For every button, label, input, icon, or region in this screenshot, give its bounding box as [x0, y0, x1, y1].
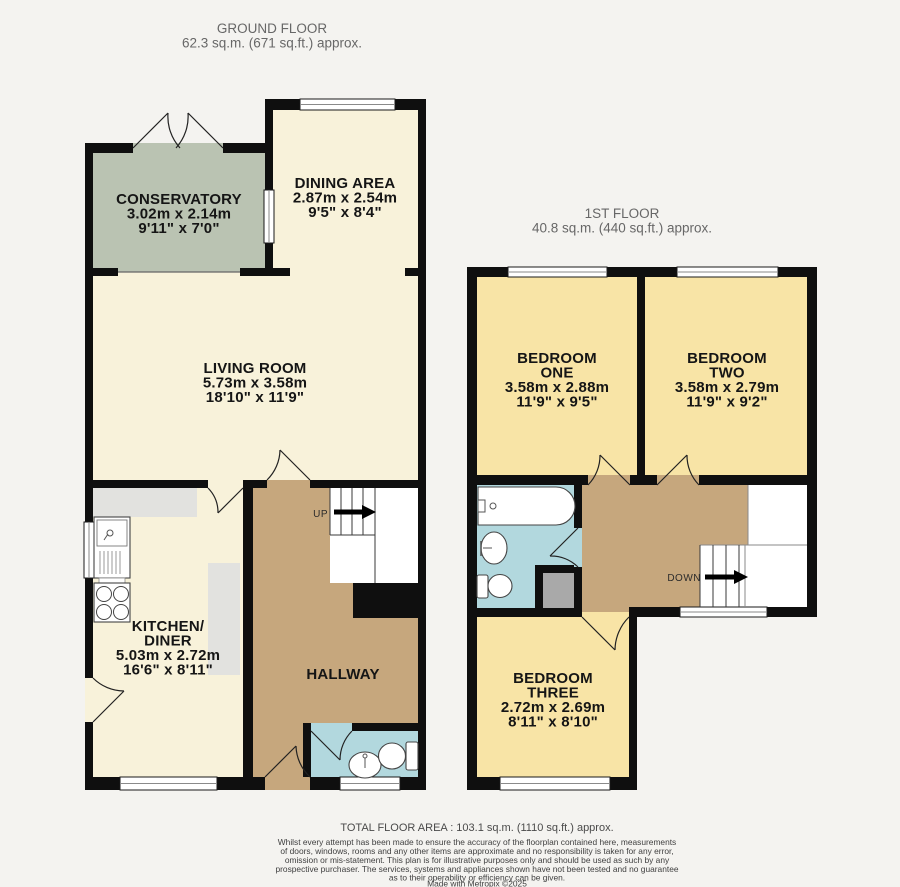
wall-segment: [467, 267, 477, 790]
bathroom-doorway: [574, 528, 582, 567]
floorplan-page: UP: [0, 0, 900, 887]
kitchen-doorway: [208, 480, 243, 488]
bedroom2-imperial: 11'9" x 9'2": [686, 394, 767, 411]
kitchen-counter-top: [93, 488, 197, 517]
wall-segment: [243, 480, 253, 783]
kitchen-hob-icon: [94, 578, 130, 622]
window: [84, 522, 94, 578]
understairs-wall-block: [353, 583, 418, 618]
back-door-opening: [85, 678, 93, 722]
wall-segment: [629, 607, 637, 790]
total-floor-area: TOTAL FLOOR AREA : 103.1 sq.m. (1110 sq.…: [340, 822, 613, 834]
window: [340, 777, 400, 790]
window: [508, 267, 607, 277]
wall-segment: [807, 267, 817, 617]
conservatory-door-opening: [133, 143, 223, 153]
wall-segment: [467, 608, 582, 617]
bedroom3-imperial: 8'11" x 8'10": [508, 714, 598, 731]
wc-sink-icon: [349, 752, 381, 778]
ground-floor-area: 62.3 sq.m. (671 sq.ft.) approx.: [182, 36, 362, 51]
wall-segment: [265, 99, 273, 276]
dining-living-opening: [290, 268, 405, 276]
down-label: DOWN: [667, 573, 701, 584]
window: [300, 99, 395, 110]
metropix-credit: Made with Metropix ©2025: [427, 879, 527, 887]
wall-segment: [85, 480, 426, 488]
kitchen-imperial: 16'6" x 8'11": [123, 662, 213, 679]
bathroom-toilet-icon: [477, 575, 512, 599]
airing-cupboard: [543, 573, 574, 608]
dining-imperial: 9'5" x 8'4": [308, 204, 382, 221]
wall-segment: [418, 99, 426, 790]
bathroom-sink-icon: [481, 532, 507, 564]
ground-floor-title: GROUND FLOOR: [217, 21, 328, 36]
first-floor-area: 40.8 sq.m. (440 sq.ft.) approx.: [532, 221, 712, 236]
up-label: UP: [313, 509, 328, 520]
front-door-opening: [265, 777, 310, 790]
window: [680, 607, 767, 617]
wall-segment: [467, 475, 817, 485]
window: [677, 267, 778, 277]
bedroom1-imperial: 11'9" x 9'5": [516, 394, 597, 411]
first-floor-title: 1ST FLOOR: [585, 206, 660, 221]
first-stairwell-upper: [748, 485, 807, 545]
window: [120, 777, 217, 790]
window: [264, 190, 274, 243]
living-hall-doorway: [267, 480, 310, 488]
wc-toilet-icon: [379, 742, 419, 770]
bathtub-icon: [478, 487, 575, 525]
kitchen-sink-icon: [94, 517, 130, 578]
living-imperial: 18'10" x 11'9": [206, 389, 304, 406]
conservatory-imperial: 9'11" x 7'0": [138, 220, 219, 237]
wall-segment: [637, 277, 645, 475]
window: [500, 777, 610, 790]
wc-doorway: [311, 723, 352, 731]
hallway-name: HALLWAY: [306, 666, 379, 683]
